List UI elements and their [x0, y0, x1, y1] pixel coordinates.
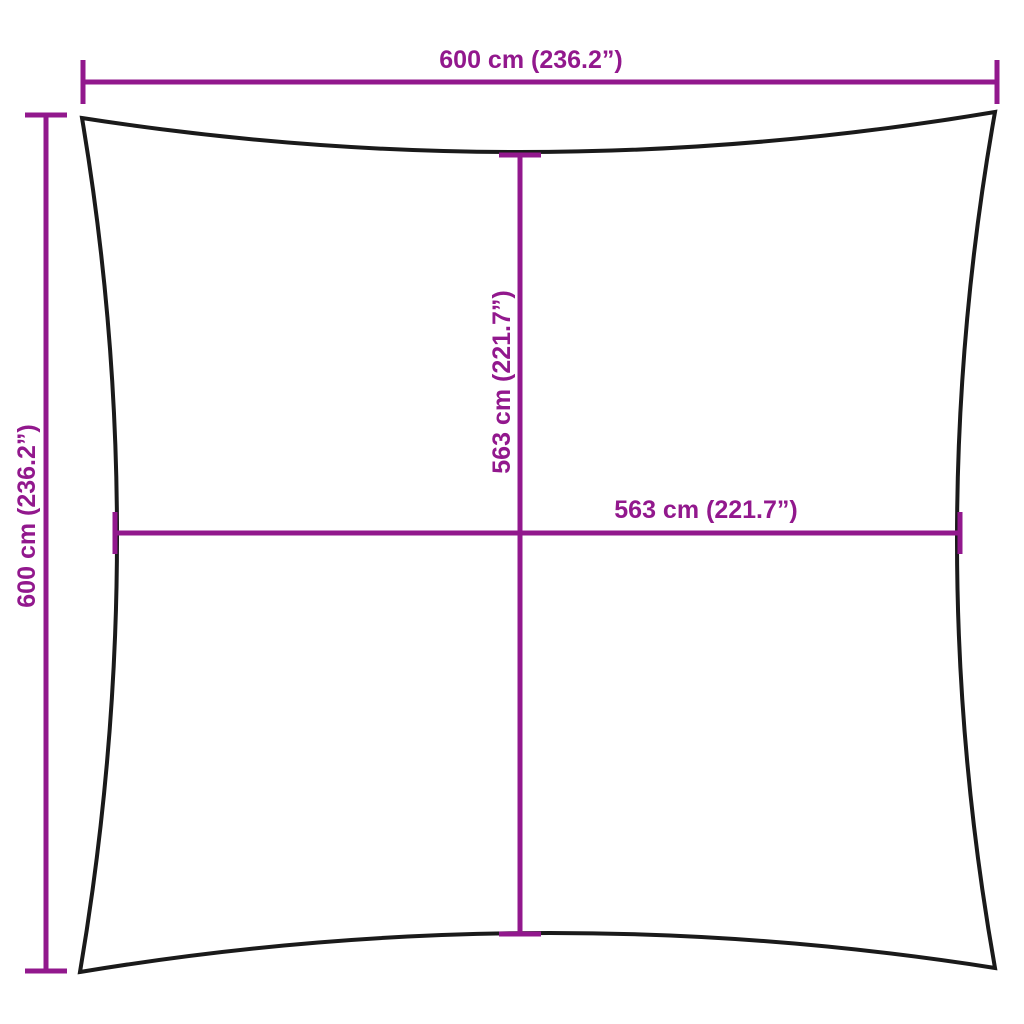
sail-outline: [80, 112, 995, 972]
top-dimension: 600 cm (236.2”): [83, 46, 997, 104]
inner-vertical-dimension: 563 cm (221.7”): [488, 155, 541, 934]
diagram-svg: 600 cm (236.2”) 600 cm (236.2”) 563 cm (…: [0, 0, 1024, 1024]
shade-sail-dimension-diagram: 600 cm (236.2”) 600 cm (236.2”) 563 cm (…: [0, 0, 1024, 1024]
inner-horizontal-dimension: 563 cm (221.7”): [115, 496, 960, 554]
inner-vertical-dimension-label: 563 cm (221.7”): [488, 290, 516, 473]
left-dimension-label: 600 cm (236.2”): [13, 424, 41, 607]
left-dimension: 600 cm (236.2”): [13, 115, 67, 971]
inner-horizontal-dimension-label: 563 cm (221.7”): [614, 496, 797, 524]
top-dimension-label: 600 cm (236.2”): [439, 46, 622, 74]
